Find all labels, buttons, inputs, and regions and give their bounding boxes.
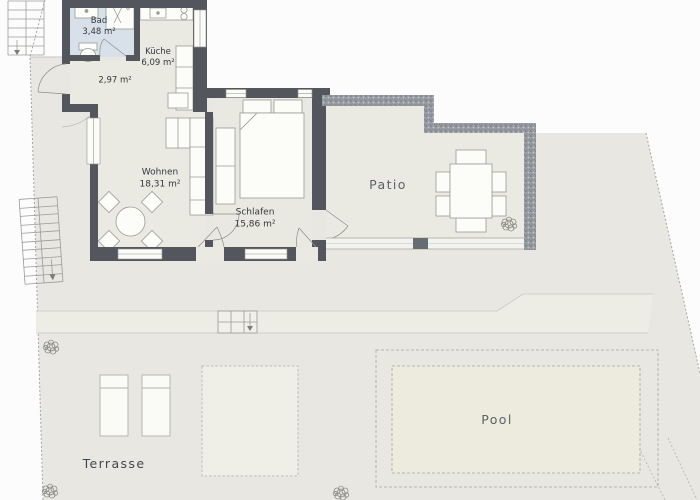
label-pool: Pool (481, 412, 512, 428)
room-label-kueche: Küche6,09 m² (141, 47, 174, 69)
floor-plan: Bad3,48 m² Küche6,09 m² 2,97 m² Wohnen18… (0, 0, 700, 500)
patio-railing (326, 238, 524, 249)
sideboard (168, 93, 188, 108)
wardrobe (216, 128, 235, 204)
room-label-flur: 2,97 m² (98, 75, 131, 86)
room-label-schlafen: Schlafen15,86 m² (234, 207, 275, 230)
double-bed (240, 100, 304, 198)
room-label-bad: Bad3,48 m² (82, 16, 115, 38)
pool (376, 350, 658, 487)
terrace-platform (202, 366, 298, 476)
room-label-wohnen: Wohnen18,31 m² (139, 167, 180, 190)
label-terrasse: Terrasse (83, 456, 146, 472)
garden-steps (218, 311, 257, 333)
label-patio: Patio (369, 177, 407, 193)
sun-lounger (100, 375, 128, 436)
sun-lounger (142, 375, 170, 436)
